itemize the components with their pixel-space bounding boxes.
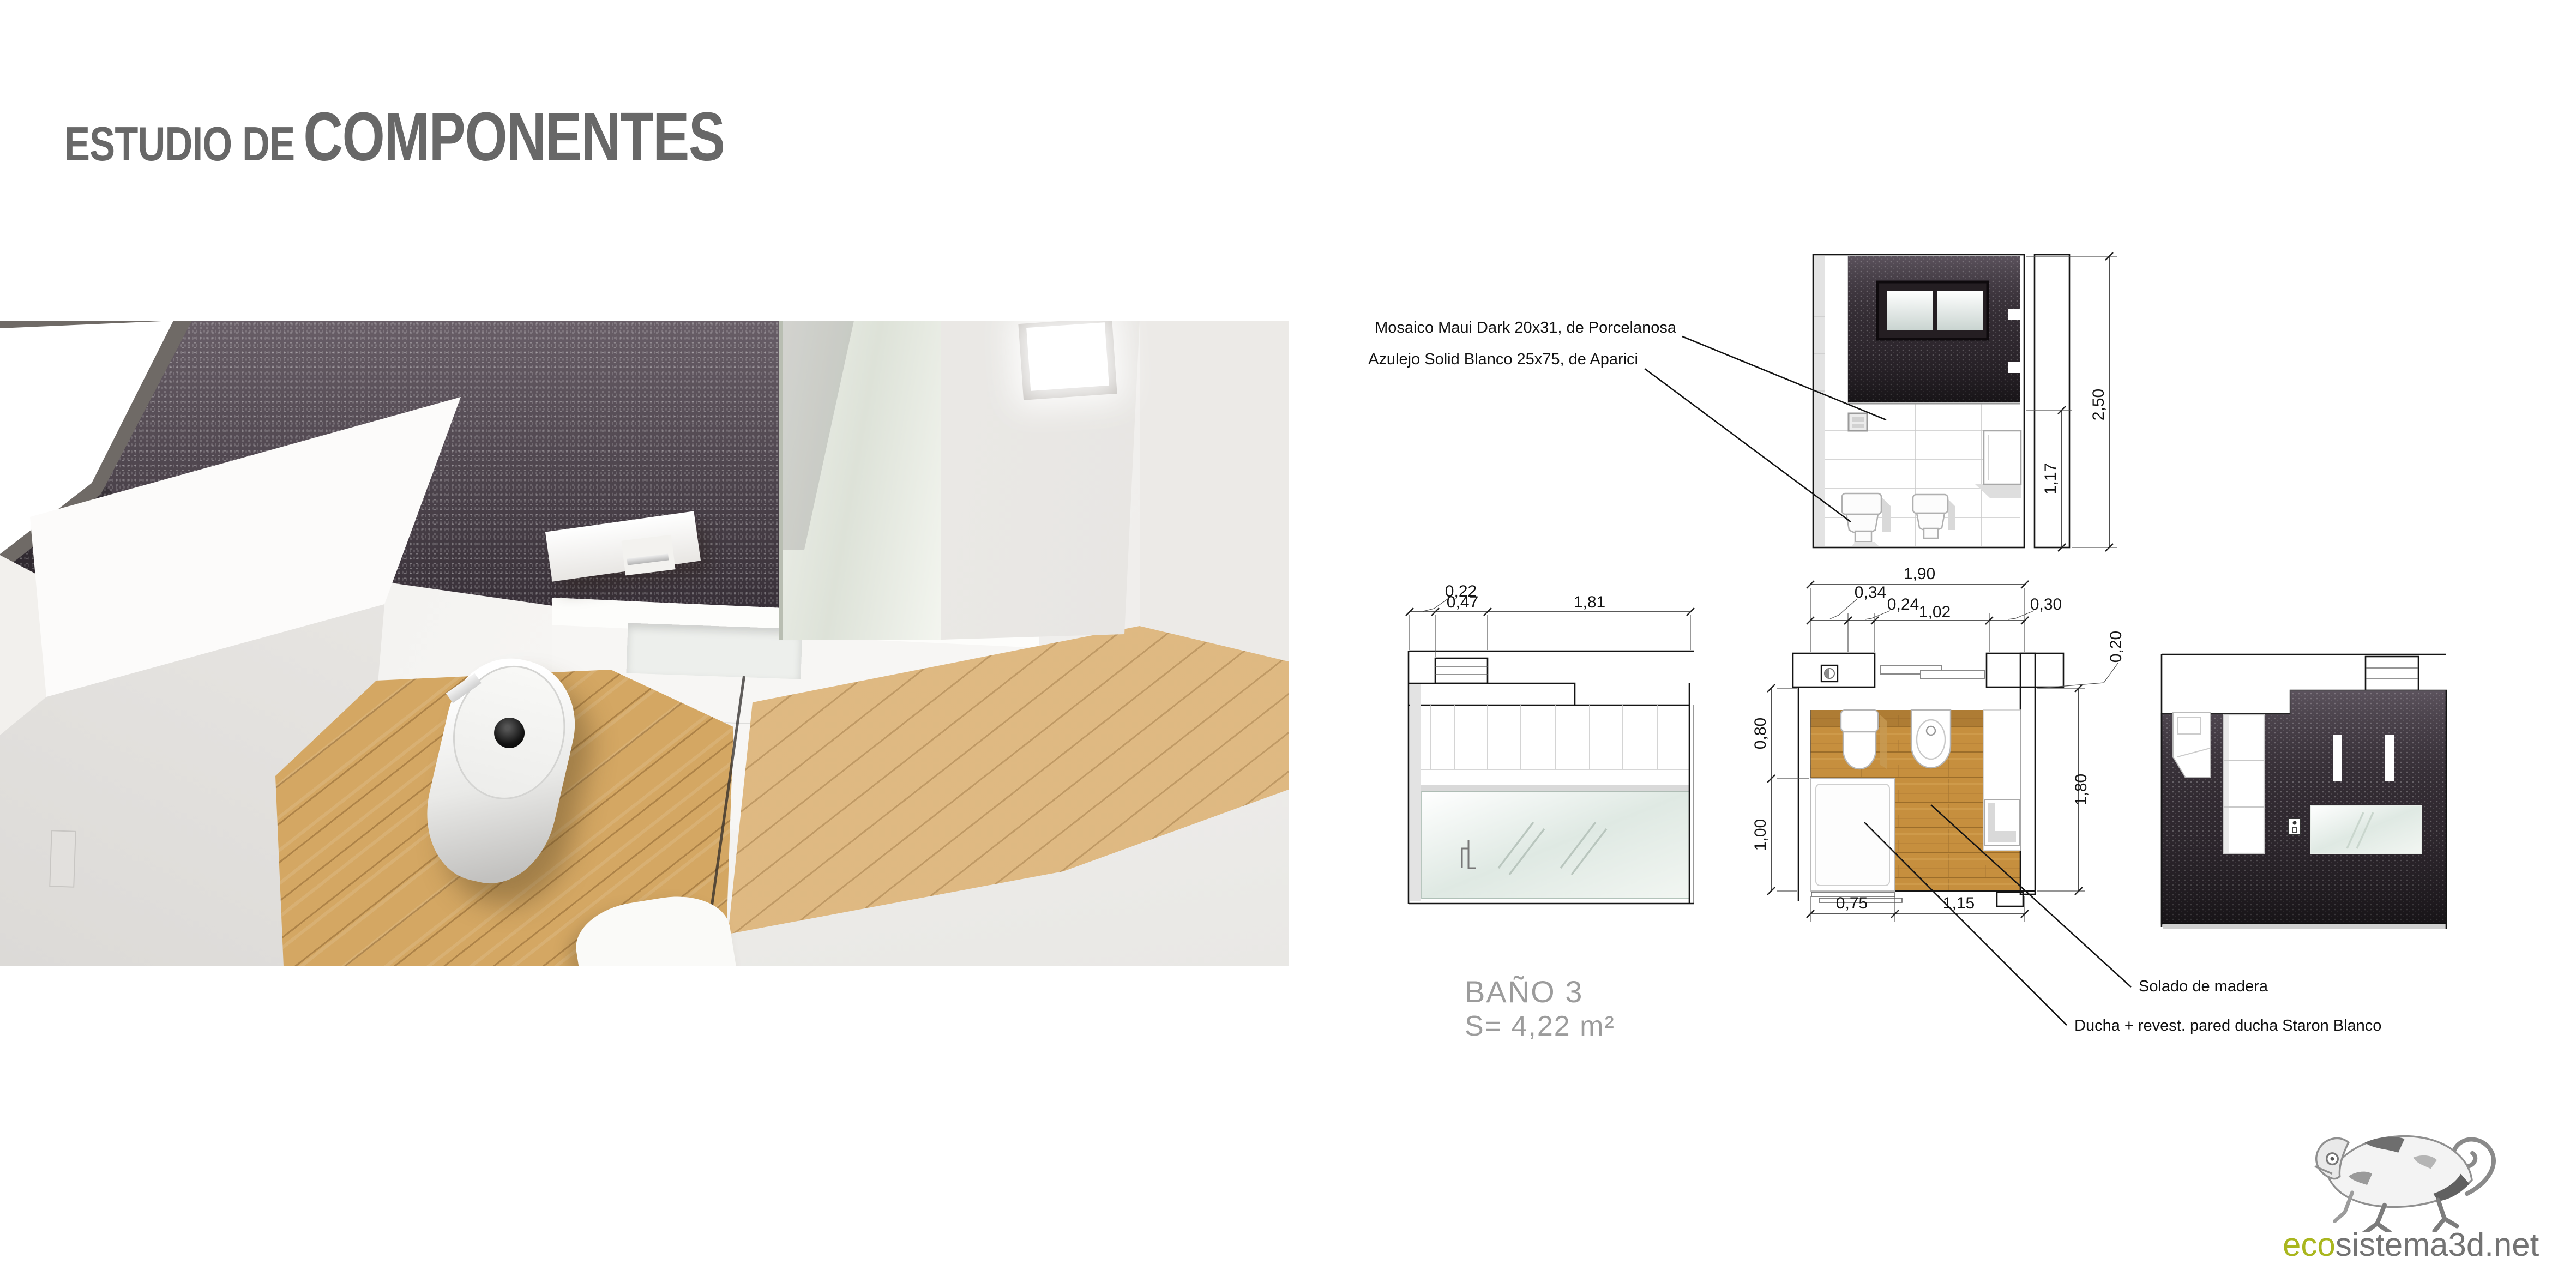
plan-dims-bottom: 0,75 1,15	[1807, 894, 2029, 922]
shower-ledge	[1421, 785, 1689, 792]
section-tile-joints	[1421, 705, 1689, 769]
dim-plan-depth: 1,80	[2072, 774, 2090, 805]
dim-side-d3: 1,81	[1574, 593, 1605, 611]
page-title-large: COMPONENTES	[303, 97, 724, 176]
dim-plan-w4: 0,30	[2030, 595, 2062, 613]
dim-plan-wall: 0,20	[2107, 631, 2125, 663]
chameleon-sketch-icon	[2289, 1102, 2524, 1232]
plan-dims-right: 1,80 0,20	[2037, 631, 2125, 895]
room-area: S= 4,22 m²	[1465, 1010, 1615, 1043]
side-wall-return	[1814, 256, 1825, 546]
room-name: BAÑO 3	[1465, 974, 1615, 1010]
dim-plan-w1: 0,34	[1855, 583, 1886, 601]
photo-door-handle	[49, 830, 76, 888]
plan-dims-left: 0,80 1,00	[1752, 684, 1809, 895]
wall-section-bar	[2035, 255, 2069, 547]
photo-small-window-glow	[1026, 322, 1109, 391]
front-elevation-dims: 2,50 1,17	[2026, 252, 2117, 551]
front-elevation: 2,50 1,17	[1813, 252, 2117, 551]
shower-section: 0,22 0,47 1,81	[1406, 582, 1694, 904]
shower-section-dims: 0,22 0,47 1,81	[1406, 582, 1694, 657]
niche-lower	[2008, 362, 2021, 373]
dim-plan-b1: 0,75	[1836, 894, 1868, 912]
tall-cabinet	[2224, 715, 2264, 853]
niche-upper	[2008, 309, 2021, 320]
plan-dims-top: 1,90 0,34 0,24 1,02 0,30	[1807, 565, 2062, 652]
brand-text-eco: eco	[2283, 1226, 2336, 1263]
brand-logo: ecosistema3d.net	[2263, 1102, 2576, 1281]
technical-drawings: 2,50 1,17 Mosaico Maui Dark 20x31, de Po…	[1298, 207, 2576, 1069]
dim-plan-b2: 1,15	[1943, 894, 1975, 912]
plan-toilet	[1841, 710, 1887, 769]
page-title: ESTUDIO DE COMPONENTES	[64, 97, 724, 176]
brand-text-rest: sistema3d.net	[2336, 1226, 2539, 1263]
bidet-elevation	[1913, 495, 1955, 538]
dim-side-d2: 0,47	[1447, 593, 1478, 611]
label-ducha: Ducha + revest. pared ducha Staron Blanc…	[2074, 1017, 2381, 1034]
brand-text: ecosistema3d.net	[2283, 1226, 2539, 1263]
rear-mirror	[2310, 806, 2422, 853]
presentation-board: ESTUDIO DE COMPONENTES	[0, 0, 2576, 1288]
sliding-door	[1880, 666, 1985, 679]
dim-plan-upper: 0,80	[1752, 718, 1770, 749]
plan-bidet	[1911, 710, 1951, 768]
dim-total-height: 2,50	[2090, 389, 2108, 420]
rear-floor-strip	[2163, 924, 2446, 929]
light-fixture-symbol	[1821, 665, 1838, 682]
page-title-small: ESTUDIO DE	[64, 116, 294, 172]
room-caption: BAÑO 3 S= 4,22 m²	[1465, 974, 1615, 1043]
rear-niche-left	[2333, 735, 2342, 781]
material-labels: Mosaico Maui Dark 20x31, de Porcelanosa …	[1368, 319, 1886, 522]
label-solado: Solado de madera	[2139, 978, 2268, 995]
duct-box	[2366, 657, 2418, 690]
rear-elevation	[2162, 654, 2446, 929]
bathroom-render-photo	[0, 321, 1289, 966]
photo-sink	[626, 623, 802, 679]
dim-plan-w2: 0,24	[1887, 595, 1919, 613]
dim-plan-w3: 1,02	[1919, 603, 1951, 621]
dim-plan-width: 1,90	[1904, 565, 1935, 583]
toilet-elevation	[1842, 493, 1891, 546]
socket-icon	[2289, 818, 2301, 834]
shower-glass	[1422, 792, 1689, 899]
window-elevation	[1877, 282, 1988, 339]
wall-cabinet-elevation	[1975, 431, 2021, 498]
label-mosaico: Mosaico Maui Dark 20x31, de Porcelanosa	[1375, 319, 1677, 336]
plan-vanity	[1983, 710, 2020, 851]
plan-shower	[1810, 779, 1895, 891]
label-azulejo: Azulejo Solid Blanco 25x75, de Aparici	[1368, 351, 1638, 368]
flush-plate	[1849, 413, 1867, 431]
dim-tile-height: 1,17	[2042, 463, 2060, 495]
rear-niche-right	[2385, 735, 2394, 781]
dim-plan-lower: 1,00	[1752, 819, 1770, 851]
